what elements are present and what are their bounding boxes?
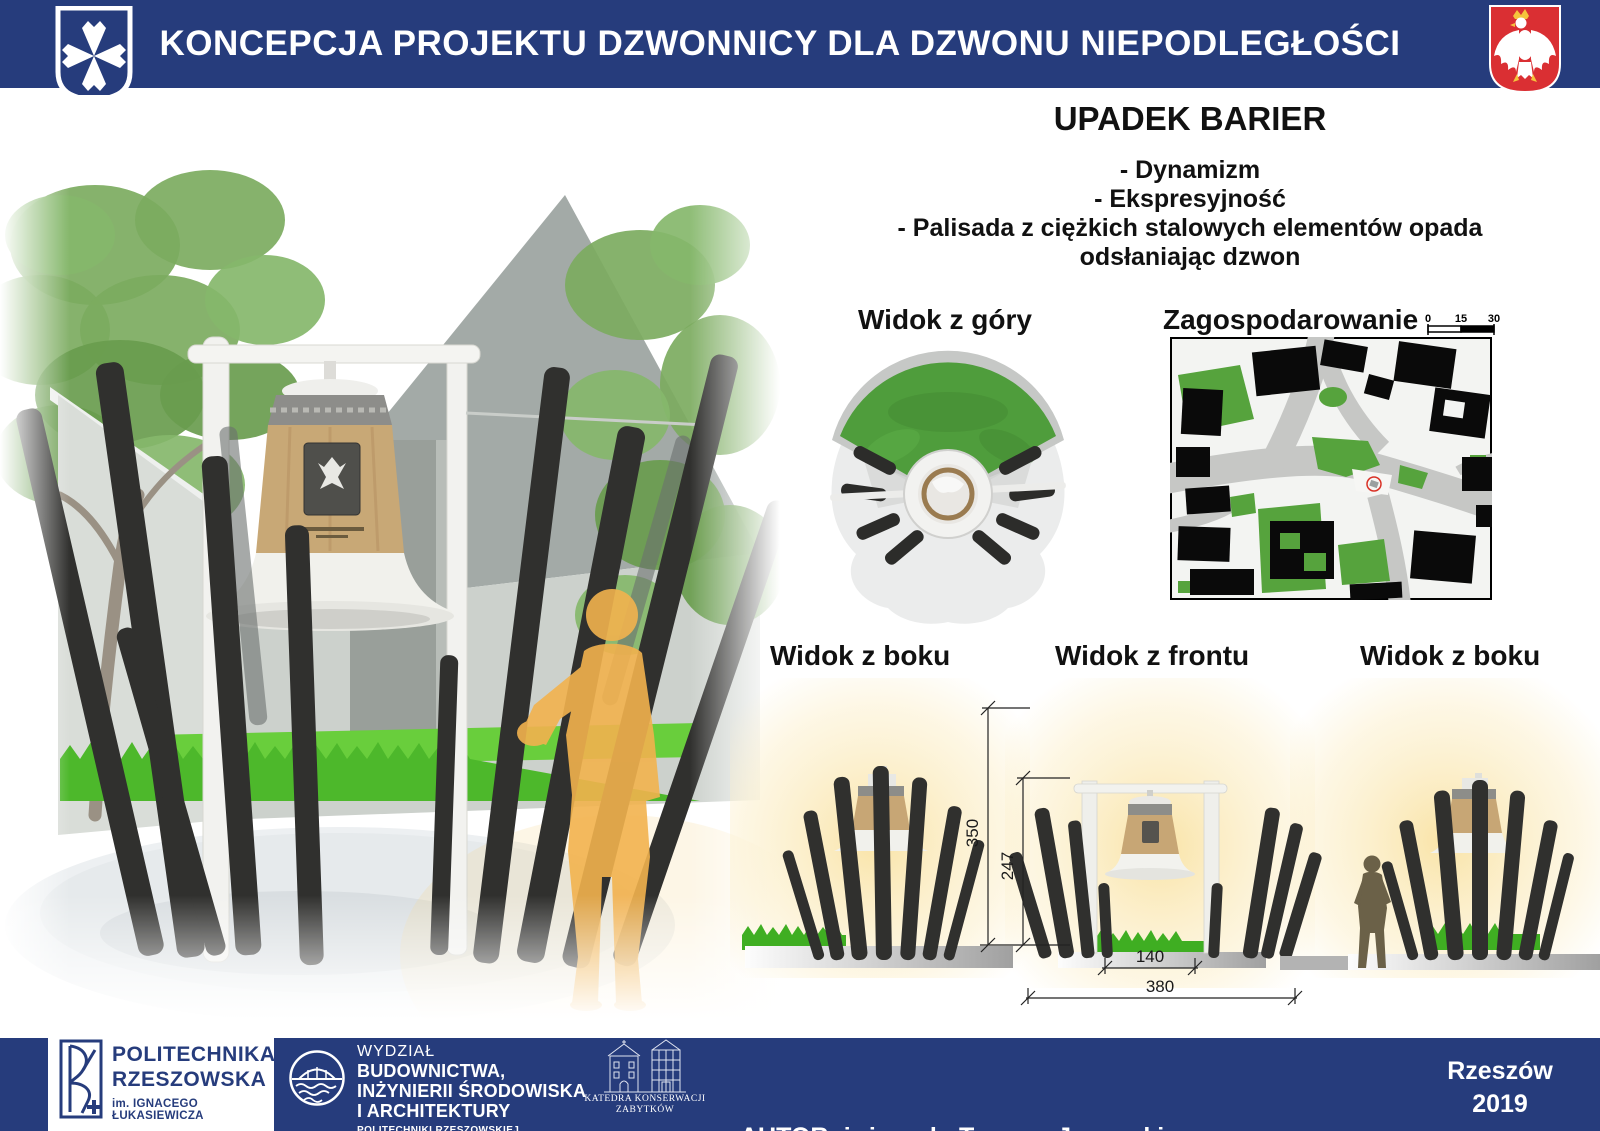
faculty-line5: POLITECHNIKI RZESZOWSKIEJ [357, 1125, 586, 1131]
university-name-line1: POLITECHNIKA [112, 1042, 276, 1067]
credits-block: AUTOR: inż. arch. Tomasz Jaworski PROMOT… [740, 1055, 1348, 1131]
department-logo-icon [570, 1038, 720, 1094]
concept-bullets: - Dynamizm - Ekspresyjność - Palisada z … [780, 156, 1600, 272]
department-name-line2: ZABYTKÓW [570, 1105, 720, 1116]
city-label: Rzeszów [1420, 1055, 1580, 1088]
dimension-width-total: 380 [1146, 977, 1174, 996]
siteplan-label: Zagospodarowanie [1163, 304, 1423, 336]
header-bar: KONCEPCJA PROJEKTU DZWONNICY DLA DZWONU … [0, 0, 1600, 88]
concept-bullet: odsłaniając dzwon [780, 243, 1600, 272]
dimension-height-total: 350 [963, 819, 982, 847]
elevations-illustration: 350 247 140 380 [730, 678, 1600, 1020]
page-title: KONCEPCJA PROJEKTU DZWONNICY DLA DZWONU … [0, 24, 1560, 64]
department-name-line1: KATEDRA KONSERWACJI [570, 1094, 720, 1105]
faculty-line2: BUDOWNICTWA, [357, 1061, 586, 1081]
dimension-height-inner: 247 [998, 852, 1017, 880]
faculty-logo-icon [287, 1048, 347, 1108]
dimension-width-inner: 140 [1136, 947, 1164, 966]
department-block: KATEDRA KONSERWACJI ZABYTKÓW [570, 1038, 720, 1116]
poland-emblem-icon [1486, 4, 1564, 96]
year-label: 2019 [1420, 1088, 1580, 1121]
scale-tick-30: 30 [1488, 313, 1500, 325]
place-year-block: Rzeszów 2019 [1420, 1055, 1580, 1121]
concept-title: UPADEK BARIER [800, 100, 1580, 138]
siteplan-map [1170, 337, 1492, 600]
scale-tick-0: 0 [1425, 313, 1431, 325]
elevation-label-side-right: Widok z boku [1360, 640, 1540, 672]
author-line: AUTOR: inż. arch. Tomasz Jaworski [740, 1121, 1348, 1131]
poster: KONCEPCJA PROJEKTU DZWONNICY DLA DZWONU … [0, 0, 1600, 1131]
scale-tick-15: 15 [1455, 313, 1467, 325]
university-logo-box: POLITECHNIKA RZESZOWSKA im. IGNACEGO ŁUK… [48, 1028, 274, 1131]
elevation-label-front: Widok z frontu [1055, 640, 1245, 672]
bell-tower-render-illustration [0, 95, 780, 1020]
concept-bullet: - Palisada z ciężkich stalowych elementó… [780, 214, 1600, 243]
top-view-bell-center [904, 450, 992, 538]
concept-bullet: - Dynamizm [780, 156, 1600, 185]
faculty-text-block: WYDZIAŁ BUDOWNICTWA, INŻYNIERII ŚRODOWIS… [357, 1042, 586, 1131]
university-name-line2: RZESZOWSKA [112, 1067, 276, 1092]
top-view-illustration [812, 342, 1084, 627]
faculty-line1: WYDZIAŁ [357, 1042, 586, 1061]
university-name-line3: im. IGNACEGO ŁUKASIEWICZA [112, 1098, 276, 1122]
concept-bullet: - Ekspresyjność [780, 185, 1600, 214]
map-scale-bar: 0 15 30 [1420, 310, 1502, 340]
faculty-line4: I ARCHITEKTURY [357, 1101, 586, 1121]
top-view-label: Widok z góry [830, 304, 1060, 336]
faculty-line3: INŻYNIERII ŚRODOWISKA [357, 1081, 586, 1101]
elevation-label-side-left: Widok z boku [770, 640, 950, 672]
prz-logo-icon [58, 1038, 104, 1120]
